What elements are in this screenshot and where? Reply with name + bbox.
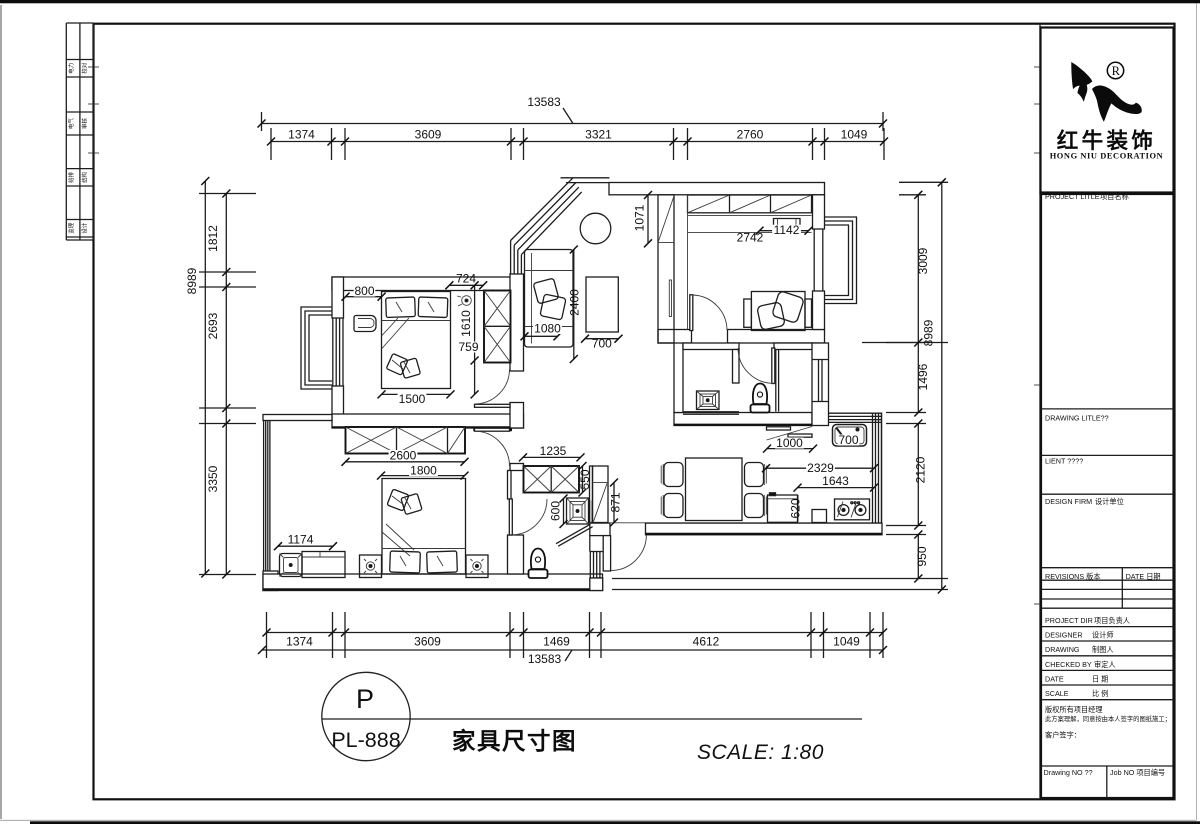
svg-text:给排: 给排 — [67, 171, 75, 183]
svg-text:P: P — [356, 684, 374, 714]
svg-text:R: R — [1112, 64, 1121, 78]
svg-text:设计师: 设计师 — [1092, 630, 1114, 639]
svg-text:结构: 结构 — [81, 171, 89, 183]
svg-text:620: 620 — [788, 498, 802, 518]
svg-text:校对: 校对 — [81, 62, 89, 74]
svg-text:1049: 1049 — [833, 635, 860, 649]
svg-text:724: 724 — [456, 272, 476, 286]
svg-text:审定人: 审定人 — [1094, 660, 1116, 669]
svg-text:LIENT ????: LIENT ???? — [1045, 457, 1083, 466]
svg-text:1500: 1500 — [399, 392, 426, 406]
svg-text:DESIGN FIRM: DESIGN FIRM — [1045, 497, 1092, 506]
svg-text:审核: 审核 — [81, 118, 89, 130]
svg-text:1610: 1610 — [459, 310, 473, 337]
svg-text:1812: 1812 — [206, 225, 220, 252]
svg-text:2760: 2760 — [737, 128, 764, 142]
svg-text:PL-888: PL-888 — [331, 728, 400, 752]
svg-text:监理: 监理 — [67, 222, 75, 234]
svg-text:1174: 1174 — [288, 533, 314, 547]
svg-text:设计单位: 设计单位 — [1095, 497, 1124, 506]
svg-text:2329: 2329 — [807, 461, 834, 475]
svg-text:1800: 1800 — [410, 464, 437, 478]
svg-text:8989: 8989 — [922, 319, 936, 346]
svg-text:871: 871 — [609, 492, 623, 512]
svg-text:2400: 2400 — [568, 289, 582, 316]
svg-text:950: 950 — [915, 546, 929, 566]
svg-text:Drawing NO ??: Drawing NO ?? — [1044, 768, 1093, 777]
svg-text:电气: 电气 — [67, 118, 75, 130]
svg-text:PROJECT LITLE: PROJECT LITLE — [1045, 192, 1100, 201]
svg-text:客户签字：: 客户签字： — [1045, 731, 1081, 740]
svg-text:DATE 日期: DATE 日期 — [1126, 572, 1161, 581]
svg-text:日 期: 日 期 — [1092, 674, 1108, 683]
svg-text:1235: 1235 — [540, 444, 567, 458]
svg-text:800: 800 — [354, 284, 374, 298]
svg-text:DATE: DATE — [1045, 674, 1064, 683]
svg-text:3009: 3009 — [916, 247, 930, 274]
svg-text:1496: 1496 — [916, 363, 930, 390]
svg-text:1071: 1071 — [633, 204, 647, 231]
svg-text:DESIGNER: DESIGNER — [1045, 630, 1083, 639]
svg-text:1643: 1643 — [822, 474, 849, 488]
svg-text:3350: 3350 — [206, 465, 220, 492]
svg-text:2742: 2742 — [737, 231, 764, 245]
svg-text:设计: 设计 — [81, 222, 89, 234]
svg-text:家具尺寸图: 家具尺寸图 — [452, 727, 577, 754]
svg-text:制图人: 制图人 — [1092, 645, 1114, 654]
svg-text:700: 700 — [592, 337, 612, 351]
svg-text:SCALE: SCALE — [1045, 689, 1069, 698]
svg-text:8989: 8989 — [185, 267, 199, 294]
svg-text:600: 600 — [549, 501, 563, 521]
svg-text:DRAWING LITLE??: DRAWING LITLE?? — [1045, 414, 1109, 423]
svg-text:1374: 1374 — [288, 128, 315, 142]
svg-text:版权所有项目经理: 版权所有项目经理 — [1045, 705, 1103, 714]
svg-text:电力: 电力 — [67, 63, 75, 74]
svg-text:此方案理解，同意按由本人签字的图纸施工；: 此方案理解，同意按由本人签字的图纸施工； — [1045, 714, 1171, 723]
svg-text:1049: 1049 — [841, 128, 868, 142]
svg-text:550: 550 — [578, 469, 592, 489]
svg-text:比 例: 比 例 — [1092, 689, 1108, 698]
svg-text:HONG NIU DECORATION: HONG NIU DECORATION — [1050, 152, 1164, 161]
svg-text:CHECKED BY: CHECKED BY — [1045, 660, 1092, 669]
svg-text:3321: 3321 — [585, 128, 612, 142]
svg-text:1142: 1142 — [774, 223, 800, 237]
svg-text:3609: 3609 — [414, 635, 441, 649]
svg-text:REVISIONS 版本: REVISIONS 版本 — [1045, 572, 1101, 581]
svg-text:项目负责人: 项目负责人 — [1094, 616, 1130, 625]
svg-text:4612: 4612 — [693, 635, 720, 649]
svg-text:红牛装饰: 红牛装饰 — [1057, 128, 1157, 153]
svg-text:13583: 13583 — [528, 652, 562, 666]
svg-text:SCALE: 1:80: SCALE: 1:80 — [697, 741, 824, 764]
svg-text:1080: 1080 — [534, 322, 561, 336]
svg-text:2693: 2693 — [206, 312, 220, 339]
svg-text:3609: 3609 — [415, 128, 442, 142]
svg-text:700: 700 — [838, 433, 858, 447]
svg-text:PROJECT DIR: PROJECT DIR — [1045, 616, 1093, 625]
svg-text:DRAWING: DRAWING — [1045, 645, 1080, 654]
svg-text:2600: 2600 — [390, 449, 417, 463]
svg-text:2120: 2120 — [914, 456, 928, 483]
svg-text:13583: 13583 — [527, 95, 561, 109]
svg-text:1469: 1469 — [543, 635, 570, 649]
svg-text:1374: 1374 — [286, 635, 313, 649]
svg-text:Job NO 项目编号: Job NO 项目编号 — [1110, 768, 1165, 777]
svg-text:1000: 1000 — [776, 436, 803, 450]
svg-text:759: 759 — [458, 340, 478, 354]
svg-text:项目名称: 项目名称 — [1100, 192, 1129, 201]
